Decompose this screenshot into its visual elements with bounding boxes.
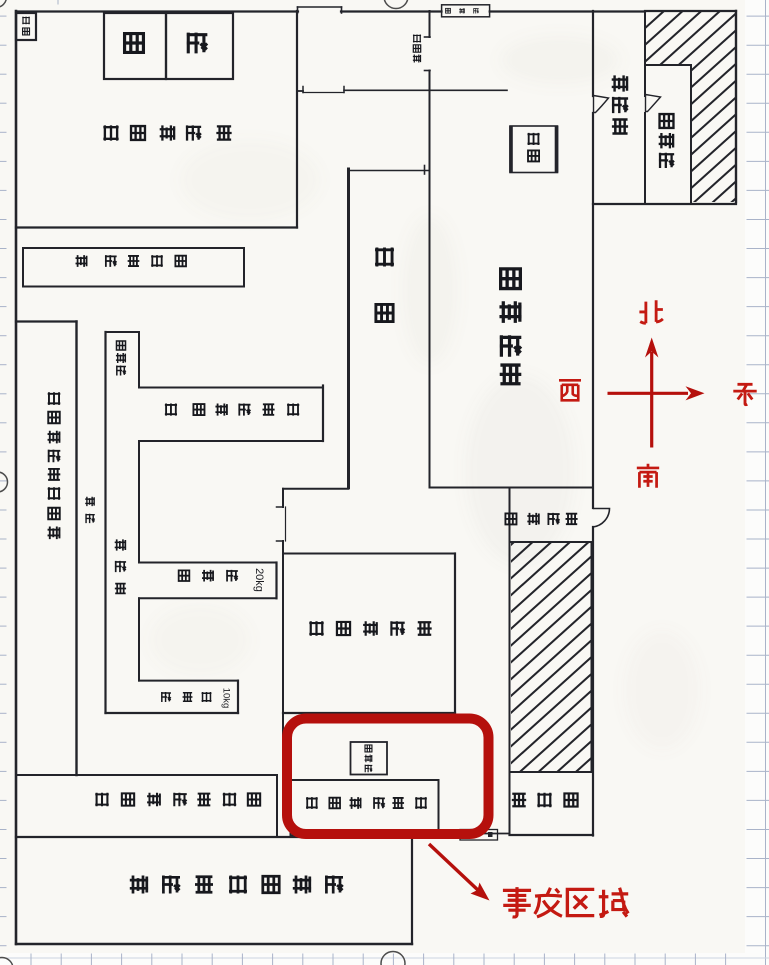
svg-text:10kg: 10kg	[221, 688, 232, 709]
svg-text:20kg: 20kg	[253, 568, 265, 592]
